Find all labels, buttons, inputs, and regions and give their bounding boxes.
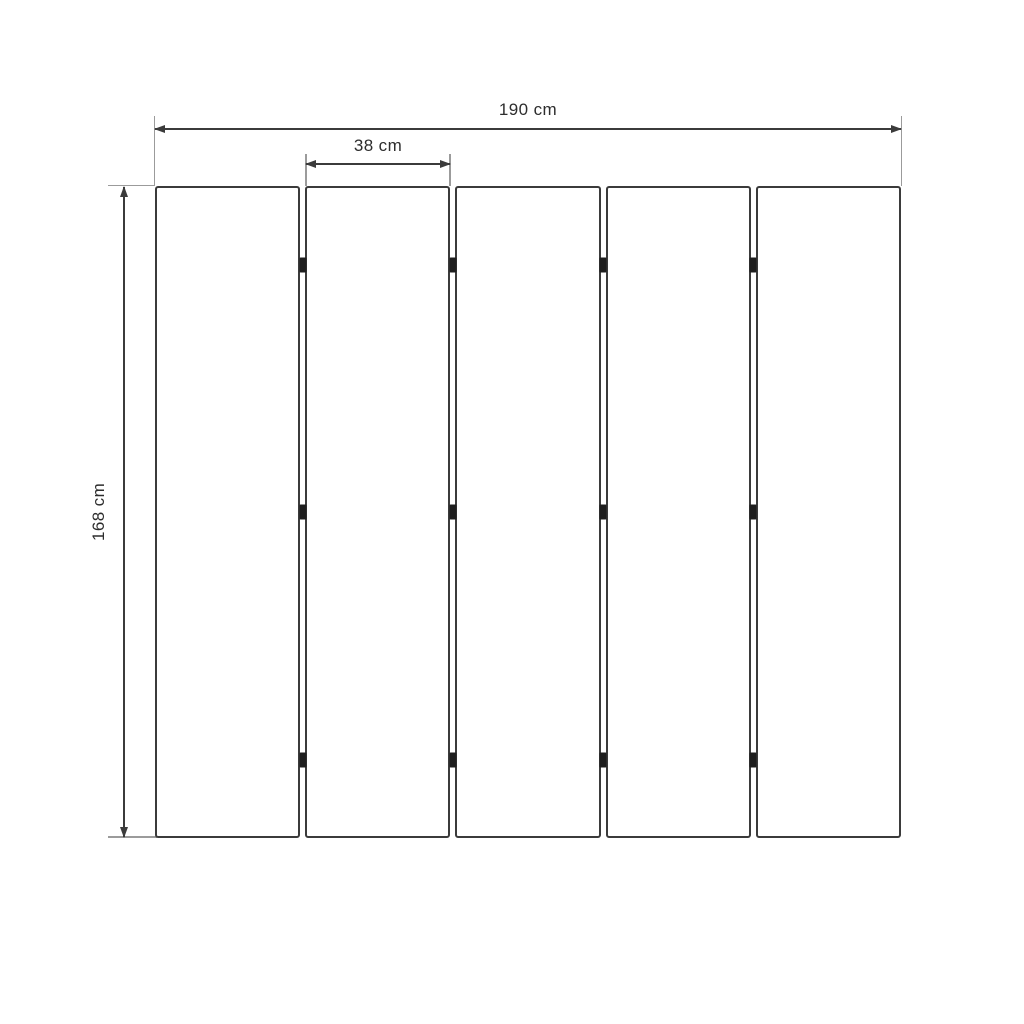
arrowhead-up-icon (120, 186, 128, 197)
arrowhead-right-icon (440, 160, 451, 168)
panel-2 (305, 186, 450, 838)
dimension-total-width-line (155, 128, 901, 130)
hinge-connector (600, 752, 607, 767)
extension-line-height-top (108, 185, 155, 187)
extension-line-panel-left (305, 154, 307, 186)
panel-1 (155, 186, 300, 838)
hinge-connector (750, 257, 757, 272)
hinge-connector (750, 505, 757, 520)
hinge-connector (750, 752, 757, 767)
hinge-connector (299, 752, 306, 767)
arrowhead-left-icon (305, 160, 316, 168)
hinge-connector (600, 505, 607, 520)
dimension-panel-width-label: 38 cm (306, 136, 450, 156)
extension-line-panel-right (449, 154, 451, 186)
dimension-height-line (123, 187, 125, 837)
dimension-total-width-label: 190 cm (155, 100, 901, 120)
hinge-connector (299, 257, 306, 272)
hinge-connector (600, 257, 607, 272)
panel-4 (606, 186, 751, 838)
hinge-connector (449, 257, 456, 272)
arrowhead-down-icon (120, 827, 128, 838)
extension-line-height-bottom (108, 836, 157, 838)
hinge-connector (449, 752, 456, 767)
panels-row (155, 186, 901, 838)
dimension-height-label: 168 cm (88, 186, 110, 838)
hinge-connector (299, 505, 306, 520)
panel-5 (756, 186, 901, 838)
diagram-canvas: 190 cm 38 cm 168 cm (0, 0, 1024, 1024)
arrowhead-right-icon (891, 125, 902, 133)
arrowhead-left-icon (154, 125, 165, 133)
dimension-panel-width-line (306, 163, 450, 165)
hinge-connector (449, 505, 456, 520)
panel-3 (455, 186, 600, 838)
